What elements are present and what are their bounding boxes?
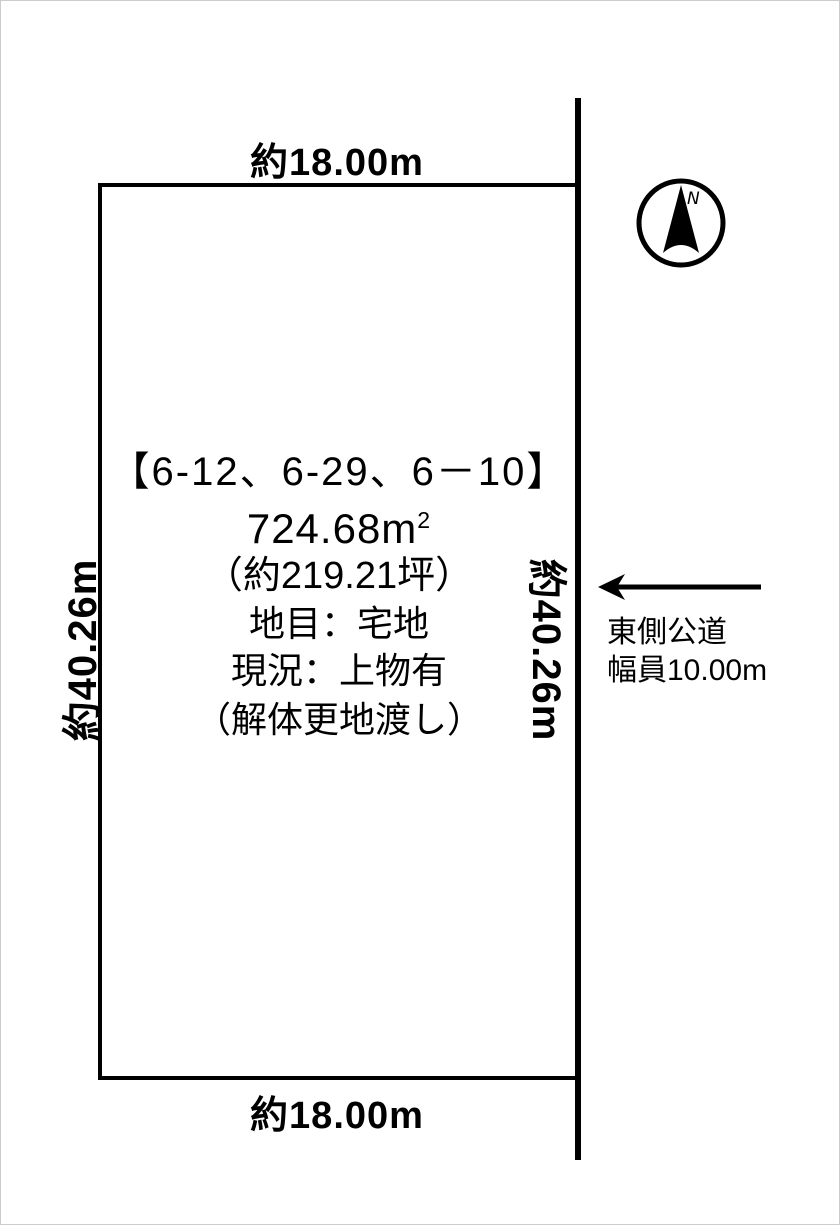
current-status: 現況：上物有 [102, 647, 576, 695]
land-plot-diagram: 約18.00m 約18.00m 約40.26m 約40.26m 【6-12、6-… [0, 0, 840, 1225]
dimension-top: 約18.00m [98, 131, 576, 186]
area-value: 724.68m [247, 505, 417, 552]
road-description: 東側公道 幅員10.00m [607, 614, 767, 690]
dimension-left: 約40.26m [50, 559, 108, 742]
lot-numbers: 【6-12、6-29、6－10】 [102, 448, 576, 496]
left-arrow-icon [598, 573, 764, 601]
compass-north-label: N [687, 189, 700, 209]
road-width: 幅員10.00m [607, 652, 767, 690]
area-sqm: 724.68m2 [102, 496, 576, 553]
area-exponent: 2 [417, 507, 431, 533]
delivery-note: （解体更地渡し） [102, 695, 576, 745]
parcel-info: 【6-12、6-29、6－10】 724.68m2 （約219.21坪） 地目：… [102, 448, 576, 745]
land-category: 地目：宅地 [102, 600, 576, 647]
area-tsubo: （約219.21坪） [102, 553, 576, 600]
north-compass-icon: N [634, 176, 728, 270]
dimension-bottom: 約18.00m [98, 1084, 576, 1139]
road-name: 東側公道 [607, 614, 767, 652]
